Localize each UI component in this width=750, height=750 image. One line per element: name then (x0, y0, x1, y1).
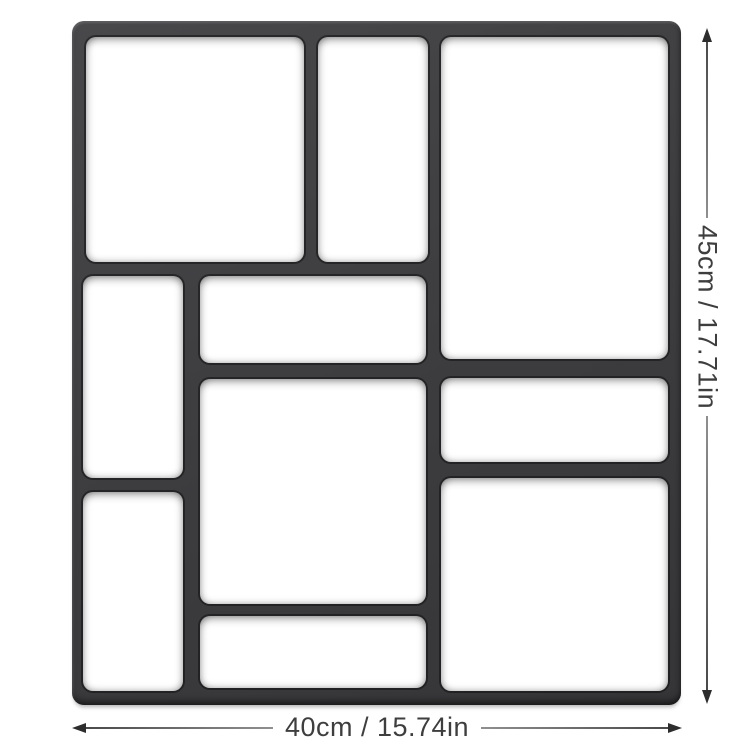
dimension-line-horizontal-right (481, 727, 668, 729)
arrow-up-icon (702, 28, 712, 42)
arrow-down-icon (702, 690, 712, 704)
width-dimension: 40cm / 15.74in (72, 715, 682, 741)
width-dimension-label: 40cm / 15.74in (285, 714, 469, 741)
dimension-line-vertical-bottom (706, 416, 708, 690)
height-dimension: 45cm / 17.71in (697, 28, 717, 704)
mold-cavity-bottom-left (83, 492, 183, 691)
mold-cavity-bottom-center (200, 616, 426, 688)
mold-cavity-middle-left (83, 276, 183, 478)
dimension-line-horizontal-left (86, 727, 273, 729)
arrow-left-icon (72, 723, 86, 733)
mold-cavity-bottom-right (441, 478, 668, 691)
product-dimension-diagram: 45cm / 17.71in 40cm / 15.74in (0, 0, 750, 750)
mold-cavity-top-right (441, 37, 668, 359)
mold-cavity-top-center (318, 37, 428, 262)
mold-cavity-middle-right (441, 378, 668, 462)
arrow-right-icon (668, 723, 682, 733)
paver-mold (72, 21, 681, 705)
mold-cavity-top-left (86, 37, 304, 262)
height-dimension-label: 45cm / 17.71in (694, 225, 721, 409)
mold-cavity-center (200, 379, 426, 604)
dimension-line-vertical-top (706, 42, 708, 218)
mold-cavity-middle-center (200, 276, 426, 363)
